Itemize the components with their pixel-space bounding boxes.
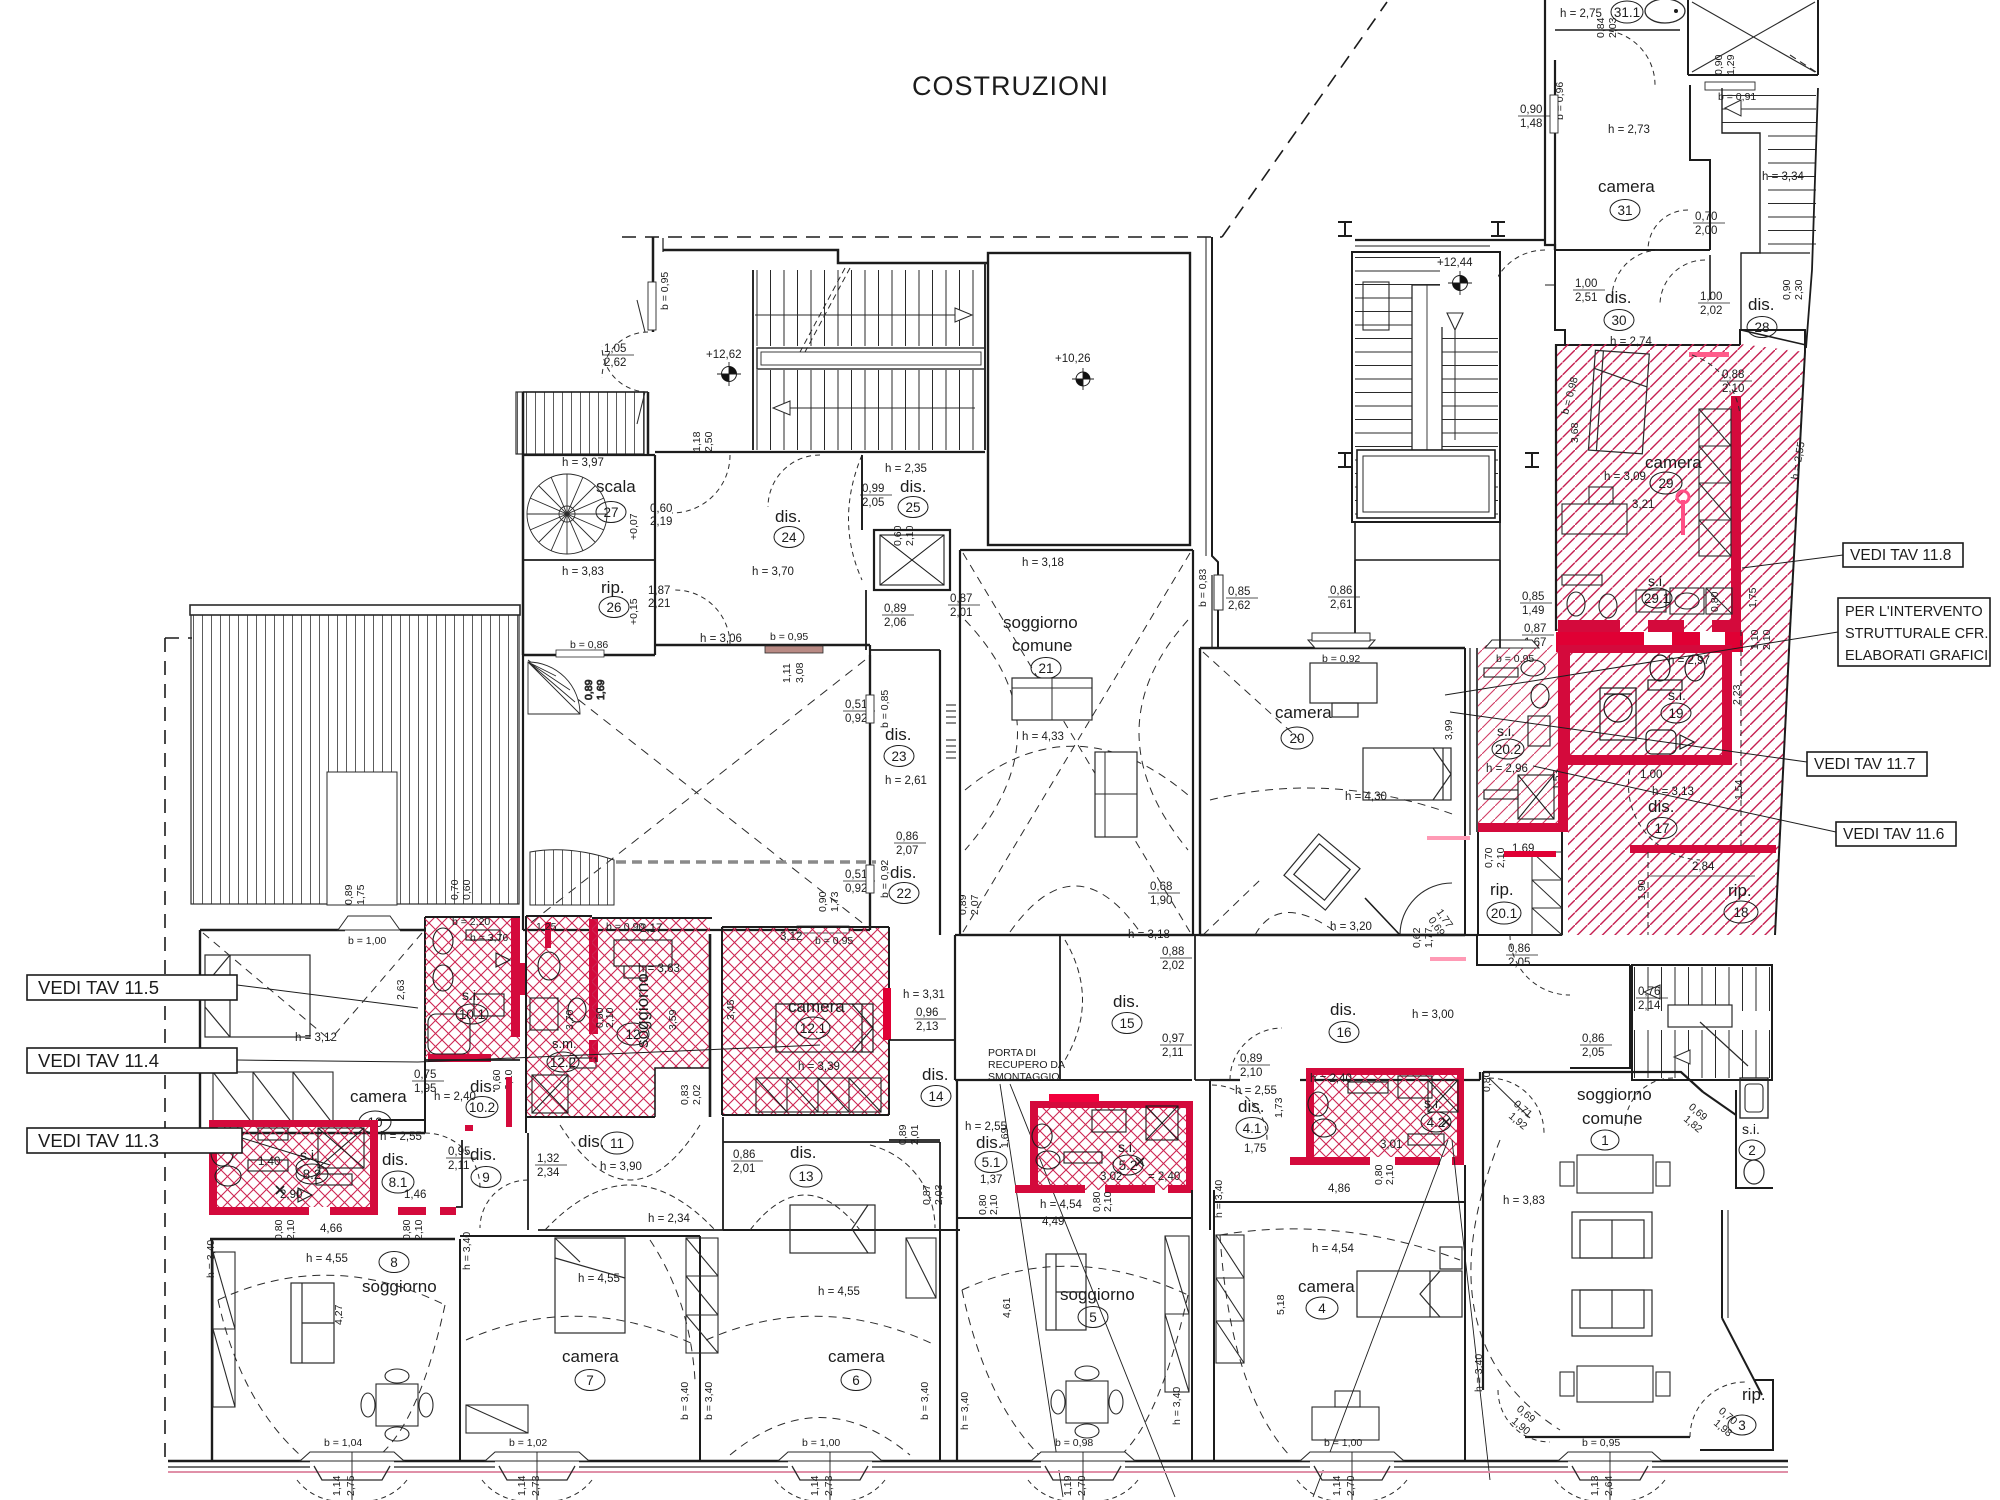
svg-text:2,62: 2,62 [1228, 600, 1250, 612]
svg-text:b = 1,00: b = 1,00 [1324, 1437, 1362, 1449]
svg-text:1,49: 1,49 [1522, 605, 1544, 617]
svg-text:0,90: 0,90 [817, 891, 829, 912]
svg-text:soggiorno: soggiorno [1003, 613, 1078, 632]
svg-text:1,73: 1,73 [829, 891, 841, 912]
svg-text:20.2: 20.2 [1495, 742, 1521, 757]
svg-text:4,49: 4,49 [1042, 1216, 1064, 1228]
svg-text:13: 13 [798, 1169, 813, 1184]
svg-text:1,87: 1,87 [648, 585, 670, 597]
svg-text:h = 3,40: h = 3,40 [205, 1240, 217, 1278]
svg-text:2,03: 2,03 [933, 1184, 945, 1205]
svg-text:b = 0,85: b = 0,85 [879, 690, 891, 728]
svg-text:1,40: 1,40 [258, 1156, 280, 1168]
svg-text:b = 3,40: b = 3,40 [703, 1382, 715, 1420]
svg-text:camera: camera [350, 1087, 407, 1106]
svg-text:2,19: 2,19 [650, 516, 672, 528]
svg-text:h = 2,34: h = 2,34 [648, 1213, 690, 1225]
svg-text:1,05: 1,05 [604, 343, 626, 355]
svg-text:+0,07: +0,07 [628, 513, 640, 540]
svg-text:1,48: 1,48 [1520, 118, 1542, 130]
svg-text:7: 7 [586, 1373, 594, 1388]
svg-text:b = 0,95: b = 0,95 [770, 631, 808, 643]
svg-text:h = 2,55: h = 2,55 [1235, 1085, 1277, 1097]
svg-text:2,84: 2,84 [1692, 861, 1715, 873]
svg-text:0,84: 0,84 [1595, 17, 1607, 38]
svg-text:h = 2,61: h = 2,61 [885, 775, 927, 787]
svg-text:camera: camera [1598, 177, 1655, 196]
svg-text:0,95: 0,95 [448, 1146, 470, 1158]
svg-text:25: 25 [905, 500, 920, 515]
svg-text:s.i.: s.i. [1424, 1095, 1442, 1111]
svg-text:17: 17 [1654, 821, 1669, 836]
svg-text:camera: camera [828, 1347, 885, 1366]
svg-text:camera: camera [1645, 453, 1702, 472]
svg-text:2,10: 2,10 [1240, 1067, 1262, 1079]
svg-text:1,69: 1,69 [999, 1127, 1011, 1148]
svg-text:4,66: 4,66 [320, 1223, 342, 1235]
svg-text:+10,26: +10,26 [1055, 353, 1091, 365]
svg-text:VEDI TAV 11.5: VEDI TAV 11.5 [38, 977, 159, 998]
svg-text:1,18: 1,18 [691, 431, 703, 452]
svg-text:23: 23 [891, 749, 906, 764]
svg-text:0,86: 0,86 [1582, 1033, 1604, 1045]
svg-text:h = 2,73: h = 2,73 [1608, 124, 1650, 136]
svg-text:2,10: 2,10 [1761, 629, 1773, 650]
svg-text:h = 3,83: h = 3,83 [1503, 1195, 1545, 1207]
svg-text:5,18: 5,18 [1275, 1294, 1287, 1315]
svg-text:b = 1,00: b = 1,00 [802, 1437, 840, 1449]
svg-text:VEDI TAV 11.4: VEDI TAV 11.4 [38, 1050, 159, 1071]
svg-text:dis.: dis. [1605, 288, 1631, 307]
svg-text:27: 27 [603, 505, 618, 520]
svg-text:0,92: 0,92 [845, 713, 867, 725]
svg-text:soggiorno: soggiorno [1577, 1085, 1652, 1104]
svg-text:1,75: 1,75 [355, 884, 367, 905]
svg-text:1,32: 1,32 [537, 1153, 559, 1165]
svg-text:dis.: dis. [1648, 797, 1674, 816]
svg-text:1,19: 1,19 [1062, 1475, 1074, 1496]
svg-text:0,87: 0,87 [1524, 623, 1546, 635]
svg-text:0,60: 0,60 [892, 525, 904, 546]
svg-text:h = 3,12: h = 3,12 [295, 1032, 337, 1044]
svg-text:0,90: 0,90 [1520, 104, 1542, 116]
svg-text:h = 3,83: h = 3,83 [562, 566, 604, 578]
svg-text:9: 9 [482, 1170, 490, 1185]
svg-text:b = 3,40: b = 3,40 [919, 1382, 931, 1420]
svg-text:4,27: 4,27 [333, 1304, 345, 1325]
svg-text:2,07: 2,07 [969, 894, 981, 915]
svg-text:1,14: 1,14 [516, 1475, 528, 1496]
svg-text:0,89: 0,89 [957, 894, 969, 915]
svg-text:s.i.: s.i. [1742, 1121, 1760, 1137]
svg-text:3,45: 3,45 [725, 999, 737, 1020]
svg-text:h = 3,00: h = 3,00 [1412, 1009, 1454, 1021]
svg-text:dis.: dis. [1330, 1000, 1356, 1019]
svg-text:b = 1,00: b = 1,00 [348, 935, 386, 947]
svg-text:3,02: 3,02 [1100, 1171, 1122, 1183]
svg-text:2,10: 2,10 [413, 1219, 425, 1240]
svg-text:dis.: dis. [790, 1143, 816, 1162]
svg-text:3,68: 3,68 [1569, 422, 1581, 443]
svg-text:15: 15 [1119, 1016, 1134, 1031]
svg-text:2,05: 2,05 [862, 497, 884, 509]
svg-text:0,75: 0,75 [414, 1069, 436, 1081]
svg-text:1,77: 1,77 [1423, 927, 1435, 948]
svg-text:0,92: 0,92 [845, 883, 867, 895]
svg-text:3,01: 3,01 [1380, 1139, 1402, 1151]
svg-text:1,37: 1,37 [980, 1174, 1002, 1186]
svg-text:2,00: 2,00 [1695, 225, 1717, 237]
svg-text:b = 0,86: b = 0,86 [570, 639, 608, 651]
svg-text:h = 2,55: h = 2,55 [380, 1131, 422, 1143]
svg-text:4,86: 4,86 [1328, 1183, 1350, 1195]
svg-text:29.1: 29.1 [1644, 591, 1670, 606]
svg-text:s.i.: s.i. [462, 987, 480, 1003]
svg-text:0,88: 0,88 [1162, 946, 1184, 958]
svg-text:0,85: 0,85 [1228, 586, 1250, 598]
svg-text:h = 3,18: h = 3,18 [1022, 557, 1064, 569]
svg-text:2,02: 2,02 [691, 1084, 703, 1105]
svg-text:20.1: 20.1 [1491, 906, 1517, 921]
svg-text:camera: camera [562, 1347, 619, 1366]
svg-text:h = 3,09: h = 3,09 [1604, 471, 1646, 483]
svg-text:2,03: 2,03 [1607, 17, 1619, 38]
svg-text:VEDI TAV 11.3: VEDI TAV 11.3 [38, 1130, 159, 1151]
svg-text:comune: comune [1582, 1109, 1642, 1128]
svg-text:2,64: 2,64 [1603, 1475, 1615, 1496]
svg-text:ELABORATI GRAFICI: ELABORATI GRAFICI [1845, 648, 1988, 664]
svg-text:1,75: 1,75 [1244, 1143, 1266, 1155]
svg-text:12.1: 12.1 [800, 1021, 826, 1036]
svg-text:0,90: 0,90 [1781, 279, 1793, 300]
svg-text:2,10: 2,10 [604, 1007, 616, 1028]
svg-text:s.i.: s.i. [1648, 573, 1666, 589]
svg-text:0,88: 0,88 [1722, 369, 1744, 381]
svg-text:rip.: rip. [1728, 881, 1752, 900]
svg-text:5: 5 [1089, 1310, 1097, 1325]
svg-text:3,70: 3,70 [564, 1009, 576, 1030]
svg-text:1,14: 1,14 [1331, 1475, 1343, 1496]
svg-text:3,99: 3,99 [1443, 719, 1455, 740]
svg-text:dis.: dis. [1113, 992, 1139, 1011]
svg-text:2,10: 2,10 [988, 1194, 1000, 1215]
svg-text:0,85: 0,85 [1522, 591, 1544, 603]
svg-text:1,10: 1,10 [1749, 629, 1761, 650]
svg-text:b = 0,92: b = 0,92 [879, 860, 891, 898]
svg-text:0,60: 0,60 [650, 503, 672, 515]
svg-text:s.m.: s.m. [552, 1036, 577, 1051]
svg-text:2,10: 2,10 [1102, 1191, 1114, 1212]
svg-text:0,97: 0,97 [1162, 1033, 1184, 1045]
svg-text:h = 3,97: h = 3,97 [562, 457, 604, 469]
svg-text:h = 3,40: h = 3,40 [461, 1232, 473, 1270]
svg-text:1,13: 1,13 [1589, 1475, 1601, 1496]
svg-text:8.2: 8.2 [303, 1167, 322, 1182]
svg-text:0,70: 0,70 [449, 879, 461, 900]
svg-text:rip.: rip. [601, 578, 625, 597]
svg-text:2,11: 2,11 [1162, 1047, 1184, 1059]
svg-text:4: 4 [1318, 1301, 1326, 1316]
svg-text:2,21: 2,21 [648, 598, 670, 610]
svg-text:20: 20 [1289, 731, 1304, 746]
svg-text:10.1: 10.1 [459, 1007, 485, 1022]
svg-text:dis.: dis. [922, 1065, 948, 1084]
svg-text:VEDI TAV 11.7: VEDI TAV 11.7 [1814, 756, 1915, 773]
svg-text:b = 2,20: b = 2,20 [452, 916, 490, 928]
svg-text:h = 3,63: h = 3,63 [638, 963, 680, 975]
svg-text:h = 4,54: h = 4,54 [1040, 1199, 1082, 1211]
svg-text:11: 11 [610, 1136, 624, 1151]
svg-text:14: 14 [928, 1089, 944, 1104]
svg-text:0,89: 0,89 [343, 884, 355, 905]
svg-text:28: 28 [1754, 320, 1769, 335]
svg-text:camera: camera [1298, 1277, 1355, 1296]
svg-text:h = 2,97: h = 2,97 [1668, 655, 1710, 667]
svg-text:1,00: 1,00 [1640, 769, 1662, 781]
svg-text:0,70: 0,70 [1483, 847, 1495, 868]
svg-text:= 2,40: = 2,40 [1148, 1171, 1180, 1183]
svg-text:+0,15: +0,15 [628, 598, 640, 625]
svg-text:h = 3,34: h = 3,34 [1762, 171, 1804, 183]
svg-text:2,06: 2,06 [884, 617, 906, 629]
svg-text:h = 3,39: h = 3,39 [798, 1061, 840, 1073]
svg-text:camera: camera [788, 997, 845, 1016]
svg-text:0,87: 0,87 [921, 1184, 933, 1205]
svg-text:2,10: 2,10 [285, 1219, 297, 1240]
svg-text:rip.: rip. [1742, 1385, 1766, 1404]
svg-text:2,10: 2,10 [1495, 847, 1507, 868]
svg-text:0,51: 0,51 [845, 699, 867, 711]
svg-text:2,10: 2,10 [1384, 1164, 1396, 1185]
svg-text:2,90: 2,90 [280, 1189, 302, 1201]
svg-text:1,90: 1,90 [1636, 879, 1648, 900]
svg-text:3,59: 3,59 [667, 1009, 679, 1030]
svg-text:dis.: dis. [775, 507, 801, 526]
svg-text:h = 3,70: h = 3,70 [752, 566, 794, 578]
svg-text:4.2: 4.2 [1427, 1115, 1446, 1130]
svg-text:dis.: dis. [900, 477, 926, 496]
svg-text:0,89: 0,89 [1240, 1053, 1262, 1065]
svg-text:s.i.: s.i. [1118, 1139, 1136, 1155]
svg-text:2,70: 2,70 [1076, 1475, 1088, 1496]
svg-text:4,61: 4,61 [1001, 1297, 1013, 1318]
svg-text:2,50: 2,50 [703, 431, 715, 452]
svg-text:8: 8 [390, 1255, 398, 1270]
svg-text:b = 0,95: b = 0,95 [815, 935, 853, 947]
svg-text:16: 16 [1336, 1025, 1351, 1040]
svg-text:2,01: 2,01 [950, 607, 972, 619]
svg-text:0,68: 0,68 [1150, 881, 1172, 893]
svg-text:2,61: 2,61 [1330, 599, 1352, 611]
svg-text:b = 0,98: b = 0,98 [1055, 1437, 1093, 1449]
svg-text:12: 12 [625, 1027, 640, 1042]
svg-text:19: 19 [1668, 706, 1683, 721]
svg-text:3: 3 [1738, 1418, 1746, 1433]
svg-text:h = 3,40: h = 3,40 [959, 1392, 971, 1430]
svg-text:1,14: 1,14 [331, 1475, 343, 1496]
svg-text:26: 26 [606, 600, 621, 615]
svg-text:0,86: 0,86 [1330, 585, 1352, 597]
svg-text:comune: comune [1012, 636, 1072, 655]
svg-text:RECUPERO DA: RECUPERO DA [988, 1059, 1065, 1071]
svg-text:2,63: 2,63 [395, 979, 407, 1000]
svg-text:2,10: 2,10 [1722, 383, 1744, 395]
svg-text:1,69: 1,69 [595, 679, 607, 700]
svg-text:1,00: 1,00 [1575, 278, 1597, 290]
svg-text:0,70: 0,70 [1695, 211, 1717, 223]
svg-text:2,73: 2,73 [823, 1475, 835, 1496]
svg-text:0,62: 0,62 [1411, 927, 1423, 948]
svg-text:dis.: dis. [382, 1150, 408, 1169]
svg-text:h = 4,33: h = 4,33 [1022, 731, 1064, 743]
svg-text:2,34: 2,34 [537, 1167, 560, 1179]
svg-text:b = 0,83: b = 0,83 [1197, 569, 1209, 607]
svg-text:+12,44: +12,44 [1437, 257, 1473, 269]
svg-text:2,07: 2,07 [896, 845, 918, 857]
svg-text:2,51: 2,51 [1575, 292, 1597, 304]
svg-text:2,14: 2,14 [1638, 1000, 1661, 1012]
svg-text:10.2: 10.2 [469, 1100, 495, 1115]
svg-text:b = 0,95: b = 0,95 [659, 272, 671, 310]
svg-text:4.1: 4.1 [1243, 1121, 1262, 1136]
svg-text:COSTRUZIONI: COSTRUZIONI [912, 71, 1109, 101]
svg-text:h = 2,96: h = 2,96 [1486, 763, 1528, 775]
svg-text:h = 4,55: h = 4,55 [306, 1253, 348, 1265]
svg-text:2,73: 2,73 [530, 1475, 542, 1496]
svg-text:0,83: 0,83 [679, 1084, 691, 1105]
svg-text:2,01: 2,01 [733, 1163, 755, 1175]
svg-text:h = 3,31: h = 3,31 [903, 989, 945, 1001]
svg-text:6: 6 [852, 1373, 860, 1388]
svg-text:dis.: dis. [1748, 295, 1774, 314]
svg-text:31: 31 [1617, 203, 1632, 218]
svg-text:24: 24 [781, 530, 797, 545]
svg-text:2,70: 2,70 [1345, 1475, 1357, 1496]
svg-text:s.i.: s.i. [1668, 687, 1686, 703]
svg-text:0,60: 0,60 [491, 1069, 503, 1090]
svg-text:2,11: 2,11 [448, 1160, 470, 1172]
svg-text:b = 1,04: b = 1,04 [324, 1437, 362, 1449]
svg-text:3,08: 3,08 [794, 662, 806, 683]
svg-text:s.i.: s.i. [1497, 723, 1515, 739]
svg-text:2,30: 2,30 [1793, 279, 1805, 300]
svg-text:1,90: 1,90 [1150, 895, 1172, 907]
svg-text:SMONTAGGIO: SMONTAGGIO [988, 1071, 1060, 1083]
svg-text:h = 2,35: h = 2,35 [885, 463, 927, 475]
svg-text:dis.: dis. [470, 1145, 496, 1164]
svg-text:2,05: 2,05 [1582, 1047, 1604, 1059]
svg-text:0,80: 0,80 [401, 1219, 413, 1240]
svg-text:h = 4,54: h = 4,54 [1312, 1243, 1354, 1255]
svg-text:2,02: 2,02 [1162, 960, 1184, 972]
svg-text:camera: camera [1275, 703, 1332, 722]
svg-text:1,54: 1,54 [1733, 779, 1745, 800]
svg-text:0,90: 0,90 [1713, 54, 1725, 75]
svg-text:1,00: 1,00 [1700, 291, 1722, 303]
svg-text:b = 0,90: b = 0,90 [606, 921, 644, 933]
svg-text:0,86: 0,86 [733, 1149, 755, 1161]
svg-text:22: 22 [896, 886, 911, 901]
svg-text:h = 4,55: h = 4,55 [578, 1273, 620, 1285]
svg-text:h = 3,90: h = 3,90 [600, 1161, 642, 1173]
svg-text:2,10: 2,10 [904, 525, 916, 546]
svg-text:12.2: 12.2 [550, 1055, 576, 1070]
svg-text:1,14: 1,14 [809, 1475, 821, 1496]
svg-text:2,05: 2,05 [1508, 957, 1530, 969]
svg-text:2: 2 [1748, 1143, 1756, 1158]
svg-text:3,12: 3,12 [780, 931, 802, 943]
svg-text:1,29: 1,29 [1725, 54, 1737, 75]
svg-text:h = 3,06: h = 3,06 [700, 633, 742, 645]
svg-text:0,60: 0,60 [461, 879, 473, 900]
svg-text:0,89: 0,89 [884, 603, 906, 615]
svg-text:PER L'INTERVENTO: PER L'INTERVENTO [1845, 604, 1983, 620]
svg-text:b = 0,95: b = 0,95 [1582, 1437, 1620, 1449]
svg-text:rip.: rip. [1490, 880, 1514, 899]
svg-text:0,80: 0,80 [273, 1219, 285, 1240]
svg-text:0,76: 0,76 [1638, 986, 1660, 998]
svg-text:29: 29 [1658, 476, 1673, 491]
svg-text:h = 2,40: h = 2,40 [1310, 1073, 1352, 1085]
svg-text:b = 3,40: b = 3,40 [679, 1382, 691, 1420]
svg-text:0,96: 0,96 [916, 1007, 938, 1019]
svg-text:PORTA DI: PORTA DI [988, 1047, 1036, 1059]
svg-text:2,75: 2,75 [345, 1475, 357, 1496]
svg-text:dis.: dis. [890, 863, 916, 882]
svg-text:0,51: 0,51 [845, 869, 867, 881]
svg-text:0,86: 0,86 [896, 831, 918, 843]
svg-text:2,02: 2,02 [1700, 305, 1722, 317]
svg-text:5.1: 5.1 [982, 1155, 1001, 1170]
svg-text:0,87: 0,87 [950, 593, 972, 605]
svg-text:soggiorno: soggiorno [1060, 1285, 1135, 1304]
svg-text:h = 3,76: h = 3,76 [470, 932, 508, 944]
svg-text:dis.: dis. [578, 1132, 604, 1151]
svg-text:STRUTTURALE CFR.: STRUTTURALE CFR. [1845, 626, 1988, 642]
svg-text:1,73: 1,73 [1273, 1097, 1285, 1118]
svg-text:VEDI TAV 11.8: VEDI TAV 11.8 [1850, 547, 1951, 564]
svg-text:1,25: 1,25 [536, 921, 557, 933]
svg-text:21: 21 [1038, 661, 1053, 676]
svg-text:0,86: 0,86 [1508, 943, 1530, 955]
svg-text:b = 0,95: b = 0,95 [1496, 653, 1534, 665]
svg-text:h = 3,20: h = 3,20 [1330, 921, 1372, 933]
svg-text:VEDI TAV 11.6: VEDI TAV 11.6 [1843, 826, 1944, 843]
svg-text:1,11: 1,11 [781, 663, 793, 683]
svg-text:h = 3,40: h = 3,40 [1213, 1180, 1225, 1218]
svg-text:0,89: 0,89 [583, 679, 595, 700]
svg-text:+12,62: +12,62 [706, 349, 742, 361]
svg-text:h = 4,55: h = 4,55 [818, 1286, 860, 1298]
svg-text:0,99: 0,99 [862, 483, 884, 495]
svg-text:8.1: 8.1 [389, 1175, 408, 1190]
svg-text:3,21: 3,21 [1632, 499, 1654, 511]
svg-text:2,13: 2,13 [916, 1021, 938, 1033]
svg-text:30: 30 [1611, 313, 1626, 328]
svg-text:1,75: 1,75 [1747, 587, 1759, 608]
svg-text:scala: scala [596, 477, 636, 496]
svg-text:1: 1 [1601, 1133, 1609, 1148]
svg-text:b = 1,02: b = 1,02 [509, 1437, 547, 1449]
svg-text:2,62: 2,62 [604, 357, 626, 369]
svg-text:18: 18 [1733, 905, 1748, 920]
